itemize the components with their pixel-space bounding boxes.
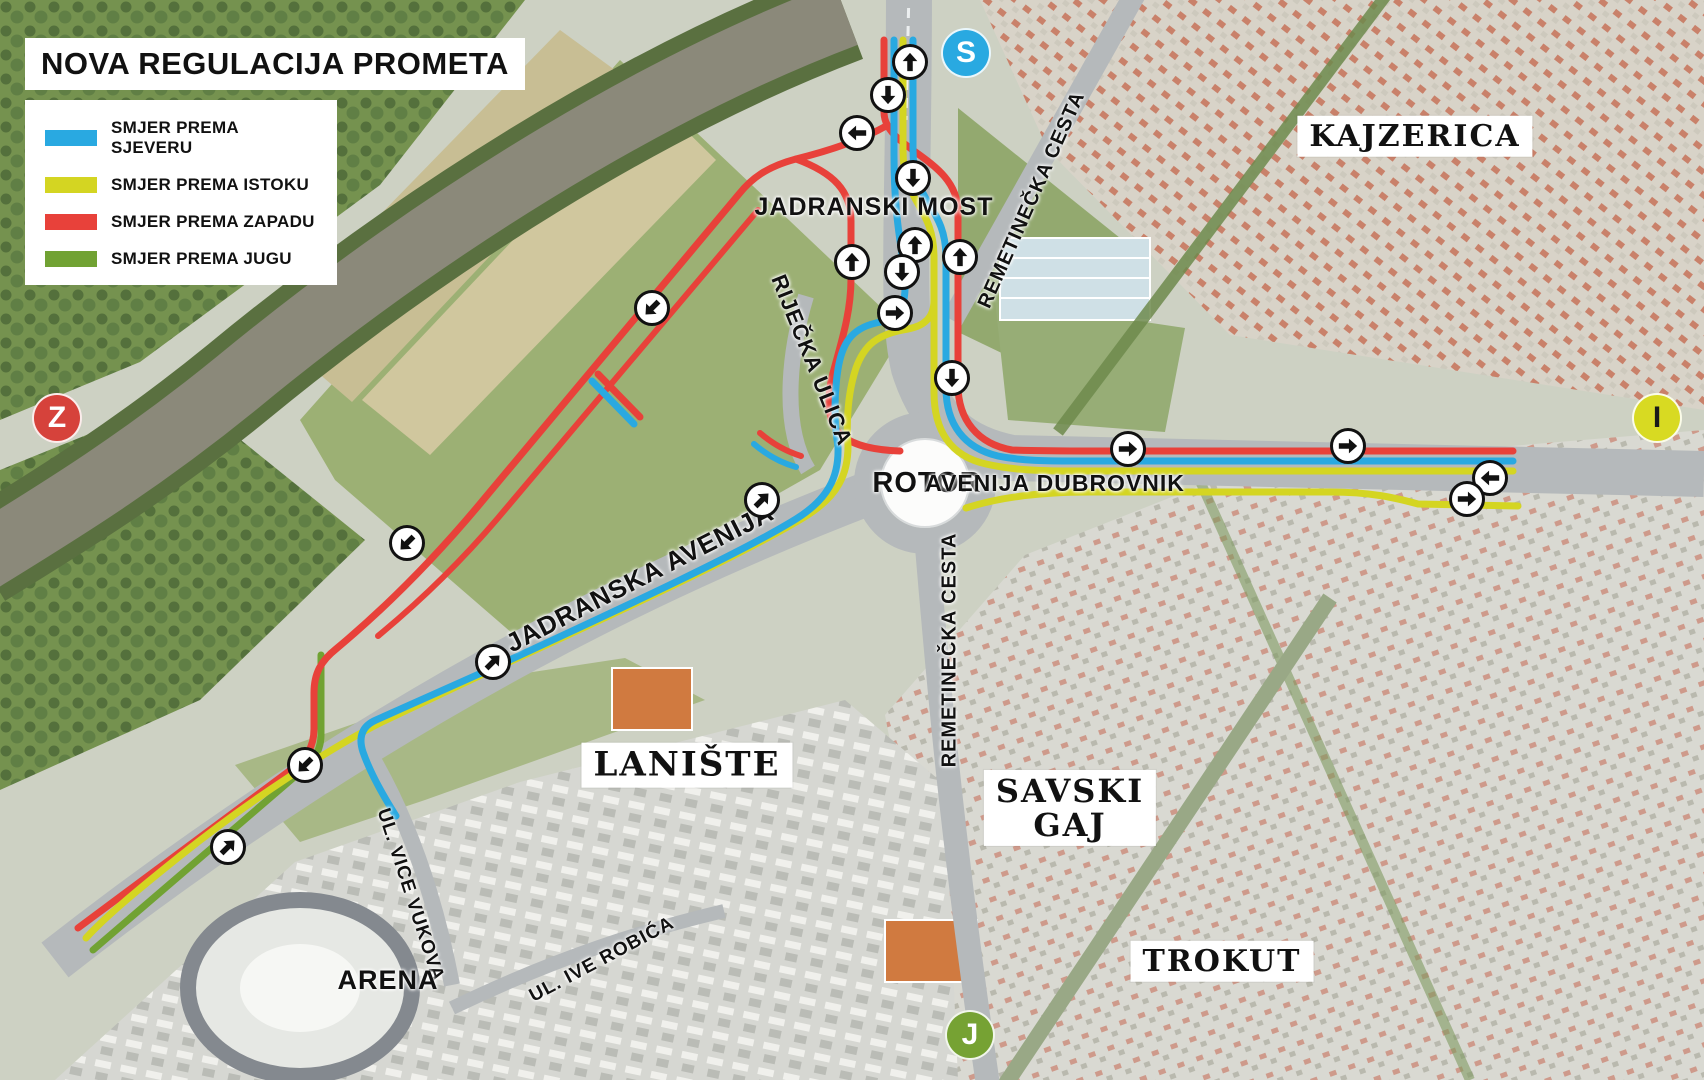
north-color-swatch (45, 130, 97, 146)
legend-label: SMJER PREMA ISTOKU (111, 175, 309, 195)
map-label-avenija-dubrovnik: AVENIJA DUBROVNIK (925, 471, 1185, 495)
direction-arrow-icon (899, 51, 921, 73)
direction-arrow-icon (941, 367, 963, 389)
direction-arrow-icon (212, 831, 243, 862)
map-label-remetine-ka-cesta: REMETINEČKA CESTA (940, 533, 961, 768)
traffic-direction-arrow (834, 244, 870, 280)
east-color-swatch (45, 177, 97, 193)
traffic-direction-arrow (280, 740, 331, 791)
map-title: NOVA REGULACIJA PROMETA (25, 38, 525, 90)
legend-label: SMJER PREMA JUGU (111, 249, 292, 269)
direction-arrow-icon (391, 527, 422, 558)
map-label-ul-vice-vukova: UL. VICE VUKOVA (373, 806, 448, 984)
direction-arrow-icon (841, 251, 863, 273)
direction-arrow-icon (289, 749, 320, 780)
direction-arrow-icon (746, 484, 777, 515)
traffic-direction-arrow (877, 295, 913, 331)
legend-item-west: SMJER PREMA ZAPADU (45, 212, 317, 232)
map-label-ul-ive-robi-a: UL. IVE ROBIĆA (526, 913, 677, 1006)
map-title-text: NOVA REGULACIJA PROMETA (41, 46, 509, 81)
west-color-swatch (45, 214, 97, 230)
direction-arrow-icon (846, 122, 868, 144)
traffic-direction-arrow (839, 115, 875, 151)
direction-arrow-icon (884, 302, 906, 324)
direction-arrow-icon (1456, 488, 1478, 510)
legend-label: SMJER PREMA SJEVERU (111, 118, 317, 158)
south-color-swatch (45, 251, 97, 267)
direction-arrow-icon (891, 261, 913, 283)
traffic-direction-arrow (1110, 431, 1146, 467)
traffic-direction-arrow (203, 822, 254, 873)
traffic-direction-arrow (1449, 481, 1485, 517)
traffic-direction-arrow (895, 160, 931, 196)
compass-marker-i: I (1632, 393, 1682, 443)
traffic-direction-arrow (884, 254, 920, 290)
traffic-direction-arrow (934, 360, 970, 396)
legend-item-south: SMJER PREMA JUGU (45, 249, 317, 269)
map-label-jadranska-avenija: JADRANSKA AVENIJA (502, 499, 778, 658)
map-label-kajzerica: KAJZERICA (1297, 116, 1532, 157)
map-label-savski-gaj: SAVSKI GAJ (984, 770, 1156, 846)
direction-arrow-icon (636, 292, 667, 323)
direction-arrow-icon (1117, 438, 1139, 460)
compass-marker-j: J (945, 1010, 995, 1060)
traffic-direction-arrow (627, 283, 678, 334)
direction-arrow-icon (949, 246, 971, 268)
legend: SMJER PREMA SJEVERUSMJER PREMA ISTOKUSMJ… (25, 100, 337, 285)
map-label-arena: ARENA (337, 966, 438, 994)
traffic-direction-arrow (942, 239, 978, 275)
map-label-rije-ka-ulica: RIJEČKA ULICA (767, 271, 857, 448)
traffic-direction-arrow (870, 77, 906, 113)
map-label-jadranski-most: JADRANSKI MOST (754, 194, 993, 220)
legend-label: SMJER PREMA ZAPADU (111, 212, 315, 232)
traffic-direction-arrow (892, 44, 928, 80)
direction-arrow-icon (877, 84, 899, 106)
legend-item-north: SMJER PREMA SJEVERU (45, 118, 317, 158)
map-label-lani-te: LANIŠTE (581, 743, 792, 788)
map-canvas: KAJZERICALANIŠTESAVSKI GAJTROKUTJADRANSK… (0, 0, 1704, 1080)
compass-marker-z: Z (32, 393, 82, 443)
traffic-direction-arrow (1330, 428, 1366, 464)
direction-arrow-icon (902, 167, 924, 189)
legend-item-east: SMJER PREMA ISTOKU (45, 175, 317, 195)
direction-arrow-icon (477, 646, 508, 677)
direction-arrow-icon (904, 234, 926, 256)
traffic-direction-arrow (382, 518, 433, 569)
map-label-trokut: TROKUT (1131, 941, 1314, 982)
compass-marker-s: S (941, 28, 991, 78)
direction-arrow-icon (1337, 435, 1359, 457)
direction-arrow-icon (1479, 467, 1501, 489)
